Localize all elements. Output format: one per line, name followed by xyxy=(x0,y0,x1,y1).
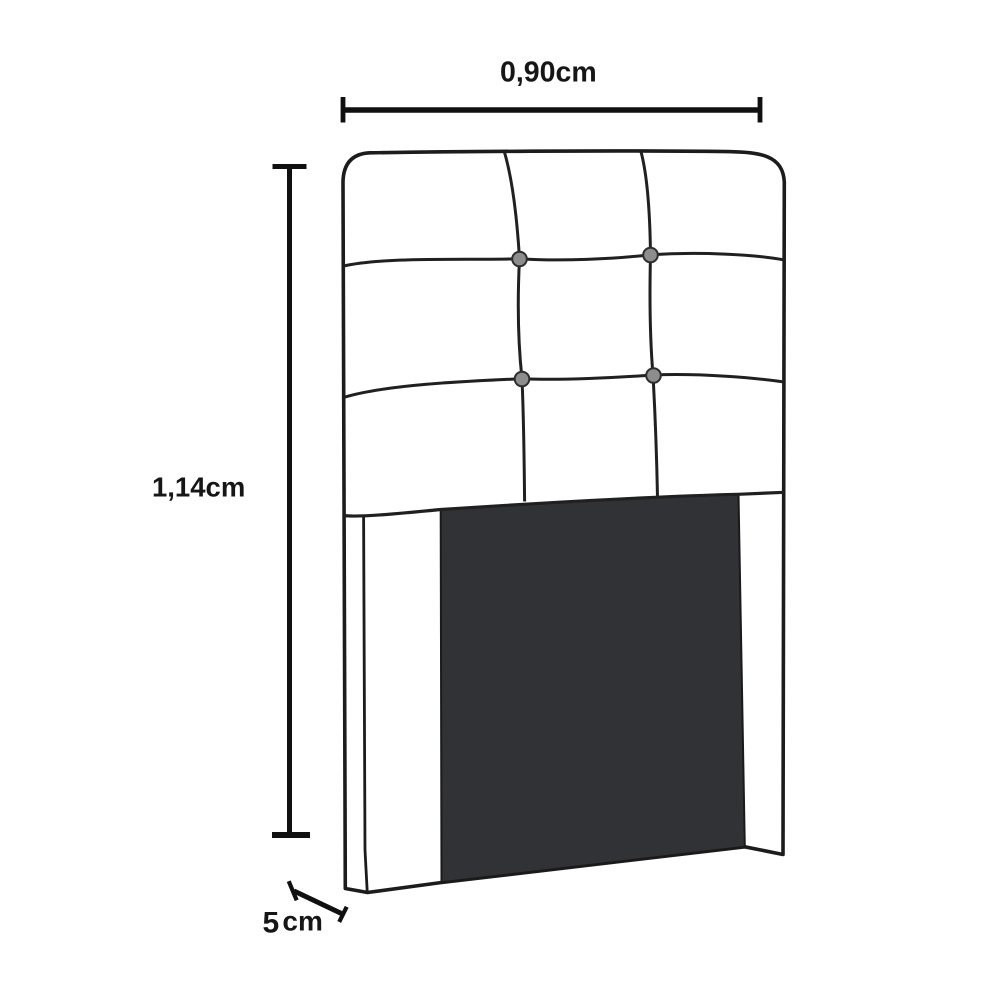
svg-text:0,90cm: 0,90cm xyxy=(500,56,597,88)
svg-text:5cm: 5cm xyxy=(263,906,323,940)
svg-text:1,14cm: 1,14cm xyxy=(152,472,245,503)
